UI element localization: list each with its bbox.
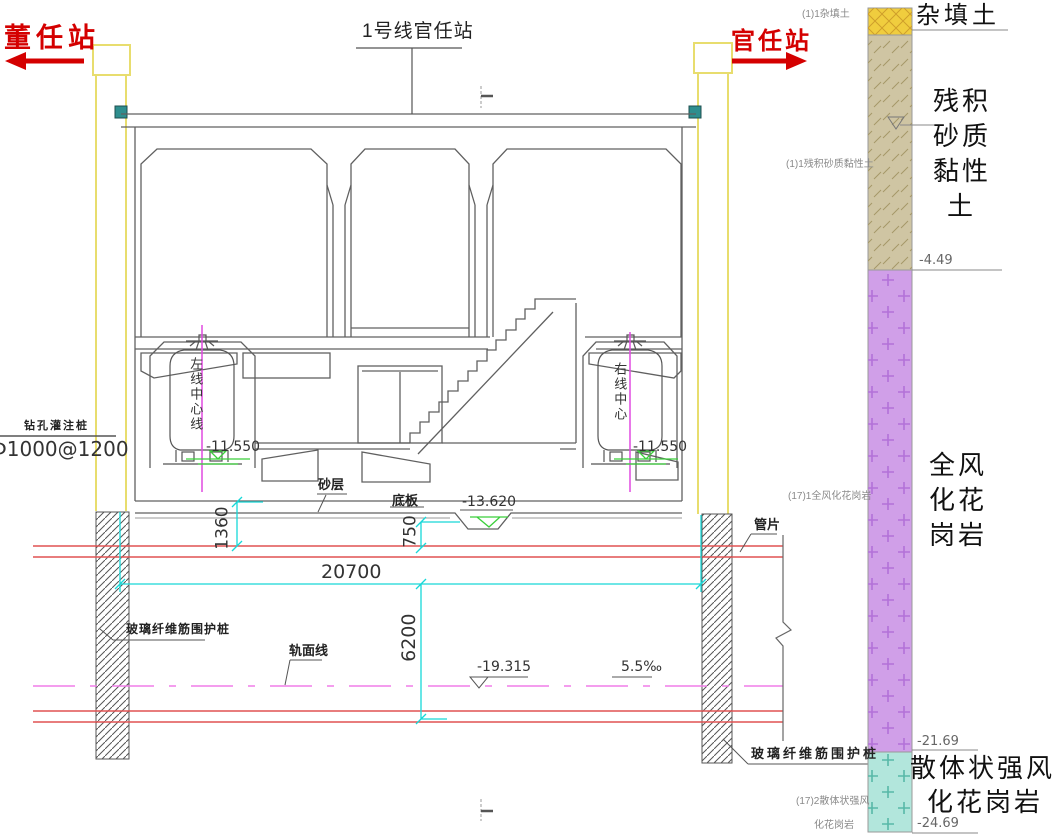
strata-note-granite-strong-2: 化花岗岩 [814,820,854,831]
geo-label-residual-0: 残积 [933,88,991,117]
leader-lines [0,48,905,764]
right-station-label: 官任站 [731,29,812,55]
geo-elev-residual-bottom: -4.49 [919,254,953,268]
left-tunnel-elevation: -11.550 [206,440,260,455]
dim-tunnel-zone-height: 6200 [399,614,420,662]
drawing-linework [0,0,1057,837]
strata-note-residual: (1)1残积砂质黏性土 [786,159,874,170]
geo-label-granite-full-0: 全风 [929,452,987,481]
drawing-title: 1号线官任站 [362,22,474,43]
geo-label-residual-1: 砂质 [933,123,991,152]
drawing-canvas: 董任站 官任站 1号线官任站 钻孔灌注桩 Φ1000@1200 左线中心线 右线… [0,0,1057,837]
geo-elev-granite-full-bottom: -21.69 [917,735,959,749]
geo-label-granite-full-1: 化花 [929,487,987,516]
right-tunnel-elevation: -11.550 [633,440,687,455]
sand-layer-label: 砂层 [318,478,344,492]
level-marks-green [186,451,678,527]
rail-elevation: -19.315 [477,660,531,675]
left-station-label: 董任站 [4,24,100,54]
wall-plate-icon [115,106,701,118]
fiberglass-pile-left-label: 玻璃纤维筋围护桩 [126,623,230,636]
geo-label-granite-full-2: 岗岩 [929,522,987,551]
strata-note-granite-full: (17)1全风化花岗岩 [788,491,871,502]
geo-column [868,8,912,832]
dim-slab-to-tunnel: 1360 [213,506,232,549]
dim-station-width: 20700 [321,562,381,583]
strata-note-fill: (1)1杂填土 [802,9,850,20]
geo-label-fill: 杂填土 [916,3,1000,29]
slope-label: 5.5‰ [621,660,662,675]
sump-elevation: -13.620 [462,495,516,510]
base-slab-label: 底板 [392,494,418,508]
break-line [776,535,791,741]
station-structure [121,114,696,529]
fiberglass-pile-right-shape [702,514,732,763]
segment-label: 管片 [754,518,780,532]
tunnel-center-lines [202,325,630,492]
geo-label-residual-3: 土 [947,193,976,222]
direction-arrow-left [5,52,84,70]
geo-label-residual-2: 黏性 [933,158,991,187]
bored-pile-spec-label: Φ1000@1200 [0,438,129,460]
left-center-line-label: 左线中心线 [188,357,202,432]
dim-sump-depth: 750 [401,515,420,547]
rail-line-label: 轨面线 [289,644,328,658]
geo-elev-granite-strong-bottom: -24.69 [917,817,959,831]
geo-label-granite-strong-0: 散体状强风 [910,755,1055,784]
bored-pile-name-label: 钻孔灌注桩 [24,420,89,432]
geo-label-granite-strong-1: 化花岗岩 [927,789,1043,818]
right-center-line-label: 右线中心 [612,362,626,422]
fiberglass-pile-right-label: 玻璃纤维筋围护桩 [751,747,879,761]
strata-note-granite-strong-1: (17)2散体状强风 [796,796,869,807]
